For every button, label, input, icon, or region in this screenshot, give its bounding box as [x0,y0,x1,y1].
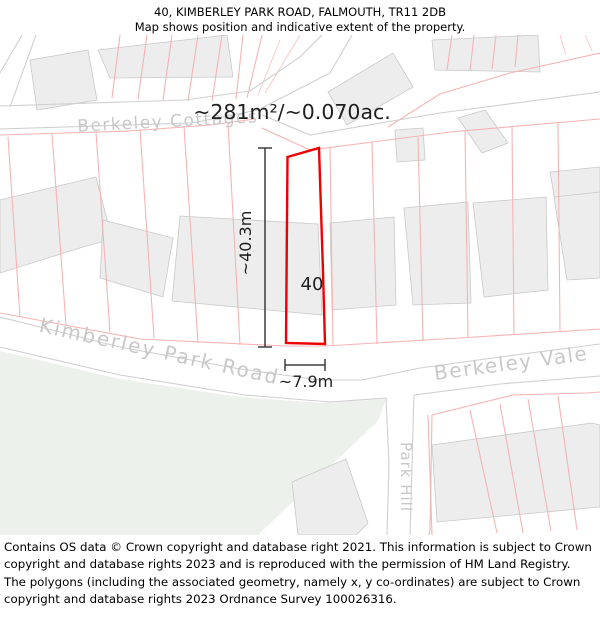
copyright-attribution: Contains OS data © Crown copyright and d… [0,535,600,609]
width-measurement [285,359,325,371]
map-description: Map shows position and indicative extent… [0,20,600,35]
plot-number-label: 40 [301,274,324,295]
height-measurement-label: ~40.3m [236,211,255,276]
map: Berkeley Cottages Kimberley Park Road Be… [0,35,600,535]
area-label: ~281m²/~0.070ac. [193,100,391,124]
road-label-park-hill: Park Hill [397,442,415,512]
report-header: 40, KIMBERLEY PARK ROAD, FALMOUTH, TR11 … [0,0,600,35]
map-canvas: Berkeley Cottages Kimberley Park Road Be… [0,35,600,535]
property-title: 40, KIMBERLEY PARK ROAD, FALMOUTH, TR11 … [0,5,600,20]
width-measurement-label: ~7.9m [279,372,333,391]
